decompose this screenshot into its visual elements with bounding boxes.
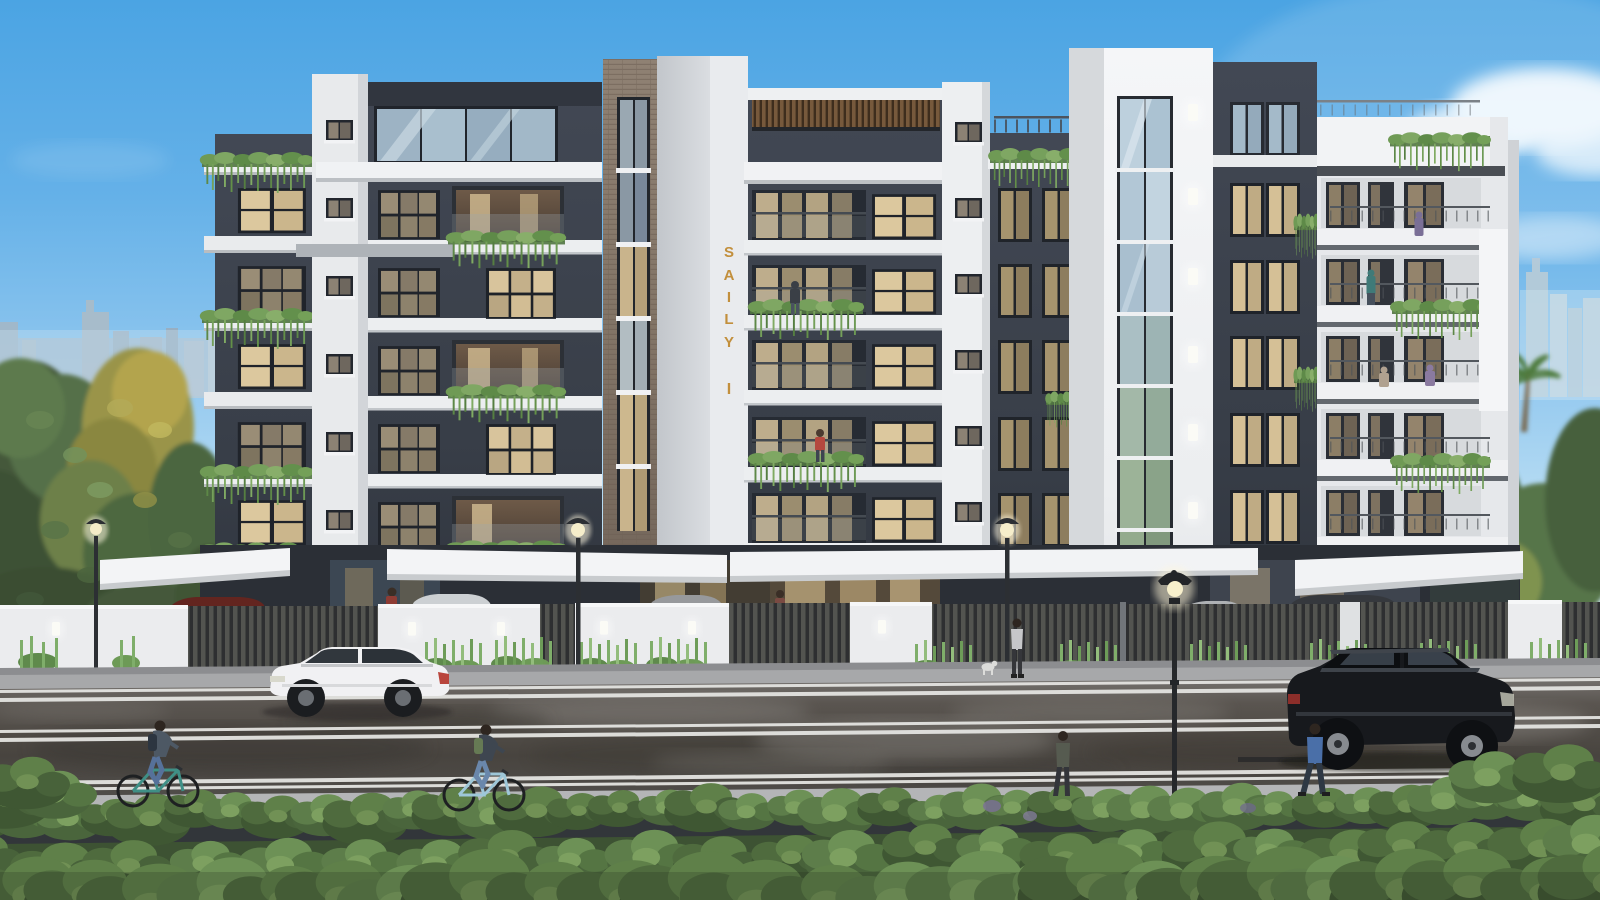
svg-text:I: I <box>727 381 731 398</box>
svg-text:S: S <box>724 244 734 261</box>
svg-text:L: L <box>724 311 733 328</box>
svg-text:A: A <box>724 267 735 284</box>
svg-text:Y: Y <box>724 334 734 351</box>
svg-text:I: I <box>727 289 731 306</box>
